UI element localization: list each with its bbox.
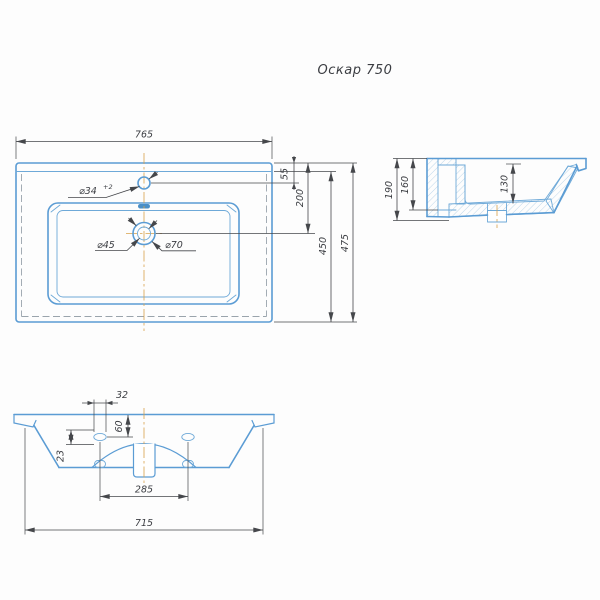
dim-200: 200 bbox=[295, 189, 306, 207]
mount-hole-right bbox=[182, 433, 194, 440]
dim-drain-outer: ⌀70 bbox=[165, 240, 183, 251]
dim-190: 190 bbox=[384, 181, 395, 199]
dim-60: 60 bbox=[114, 420, 125, 432]
dim-23: 23 bbox=[56, 450, 67, 462]
bottom-view: 32 60 23 285 715 bbox=[14, 390, 274, 535]
faucet-dim-arrow bbox=[149, 172, 158, 179]
dim-55: 55 bbox=[280, 168, 291, 180]
dim-faucet-tolerance: +2 bbox=[103, 183, 113, 191]
side-view: 190 160 130 bbox=[384, 159, 586, 229]
bottom-dim-hole-side-offset: 23 bbox=[56, 430, 95, 462]
plan-dim-depth-body: 450 bbox=[318, 172, 331, 323]
dim-130: 130 bbox=[500, 175, 511, 193]
plan-dim-depth-total: 475 bbox=[340, 163, 353, 322]
plan-dim-drain-offset: 200 bbox=[295, 163, 308, 234]
dim-32: 32 bbox=[116, 390, 128, 401]
dim-450: 450 bbox=[318, 237, 329, 255]
dim-160: 160 bbox=[400, 176, 411, 194]
drawing-title: Оскар 750 bbox=[318, 63, 393, 78]
plan-view: ⌀34 +2 ⌀45 ⌀70 765 bbox=[16, 130, 357, 332]
mount-hole-left bbox=[94, 433, 106, 440]
dim-faucet-diameter: ⌀34 bbox=[79, 186, 97, 197]
drawing-sheet: Оскар 750 ⌀34 +2 bbox=[0, 0, 600, 600]
dim-715: 715 bbox=[135, 518, 153, 529]
drain-outer-arrow bbox=[129, 218, 137, 226]
plan-basin bbox=[48, 203, 239, 304]
bottom-dim-hole-top-offset: 60 bbox=[107, 415, 133, 437]
technical-drawing: Оскар 750 ⌀34 +2 bbox=[0, 0, 600, 600]
dim-765: 765 bbox=[135, 130, 153, 141]
dim-285: 285 bbox=[135, 485, 153, 496]
side-dim-basin-depth: 130 bbox=[500, 164, 522, 204]
dim-drain-inner: ⌀45 bbox=[97, 240, 115, 251]
dim-475: 475 bbox=[340, 234, 351, 252]
plan-dim-faucet-offset: 55 bbox=[280, 156, 297, 190]
side-dim-height-total: 190 bbox=[384, 159, 449, 221]
